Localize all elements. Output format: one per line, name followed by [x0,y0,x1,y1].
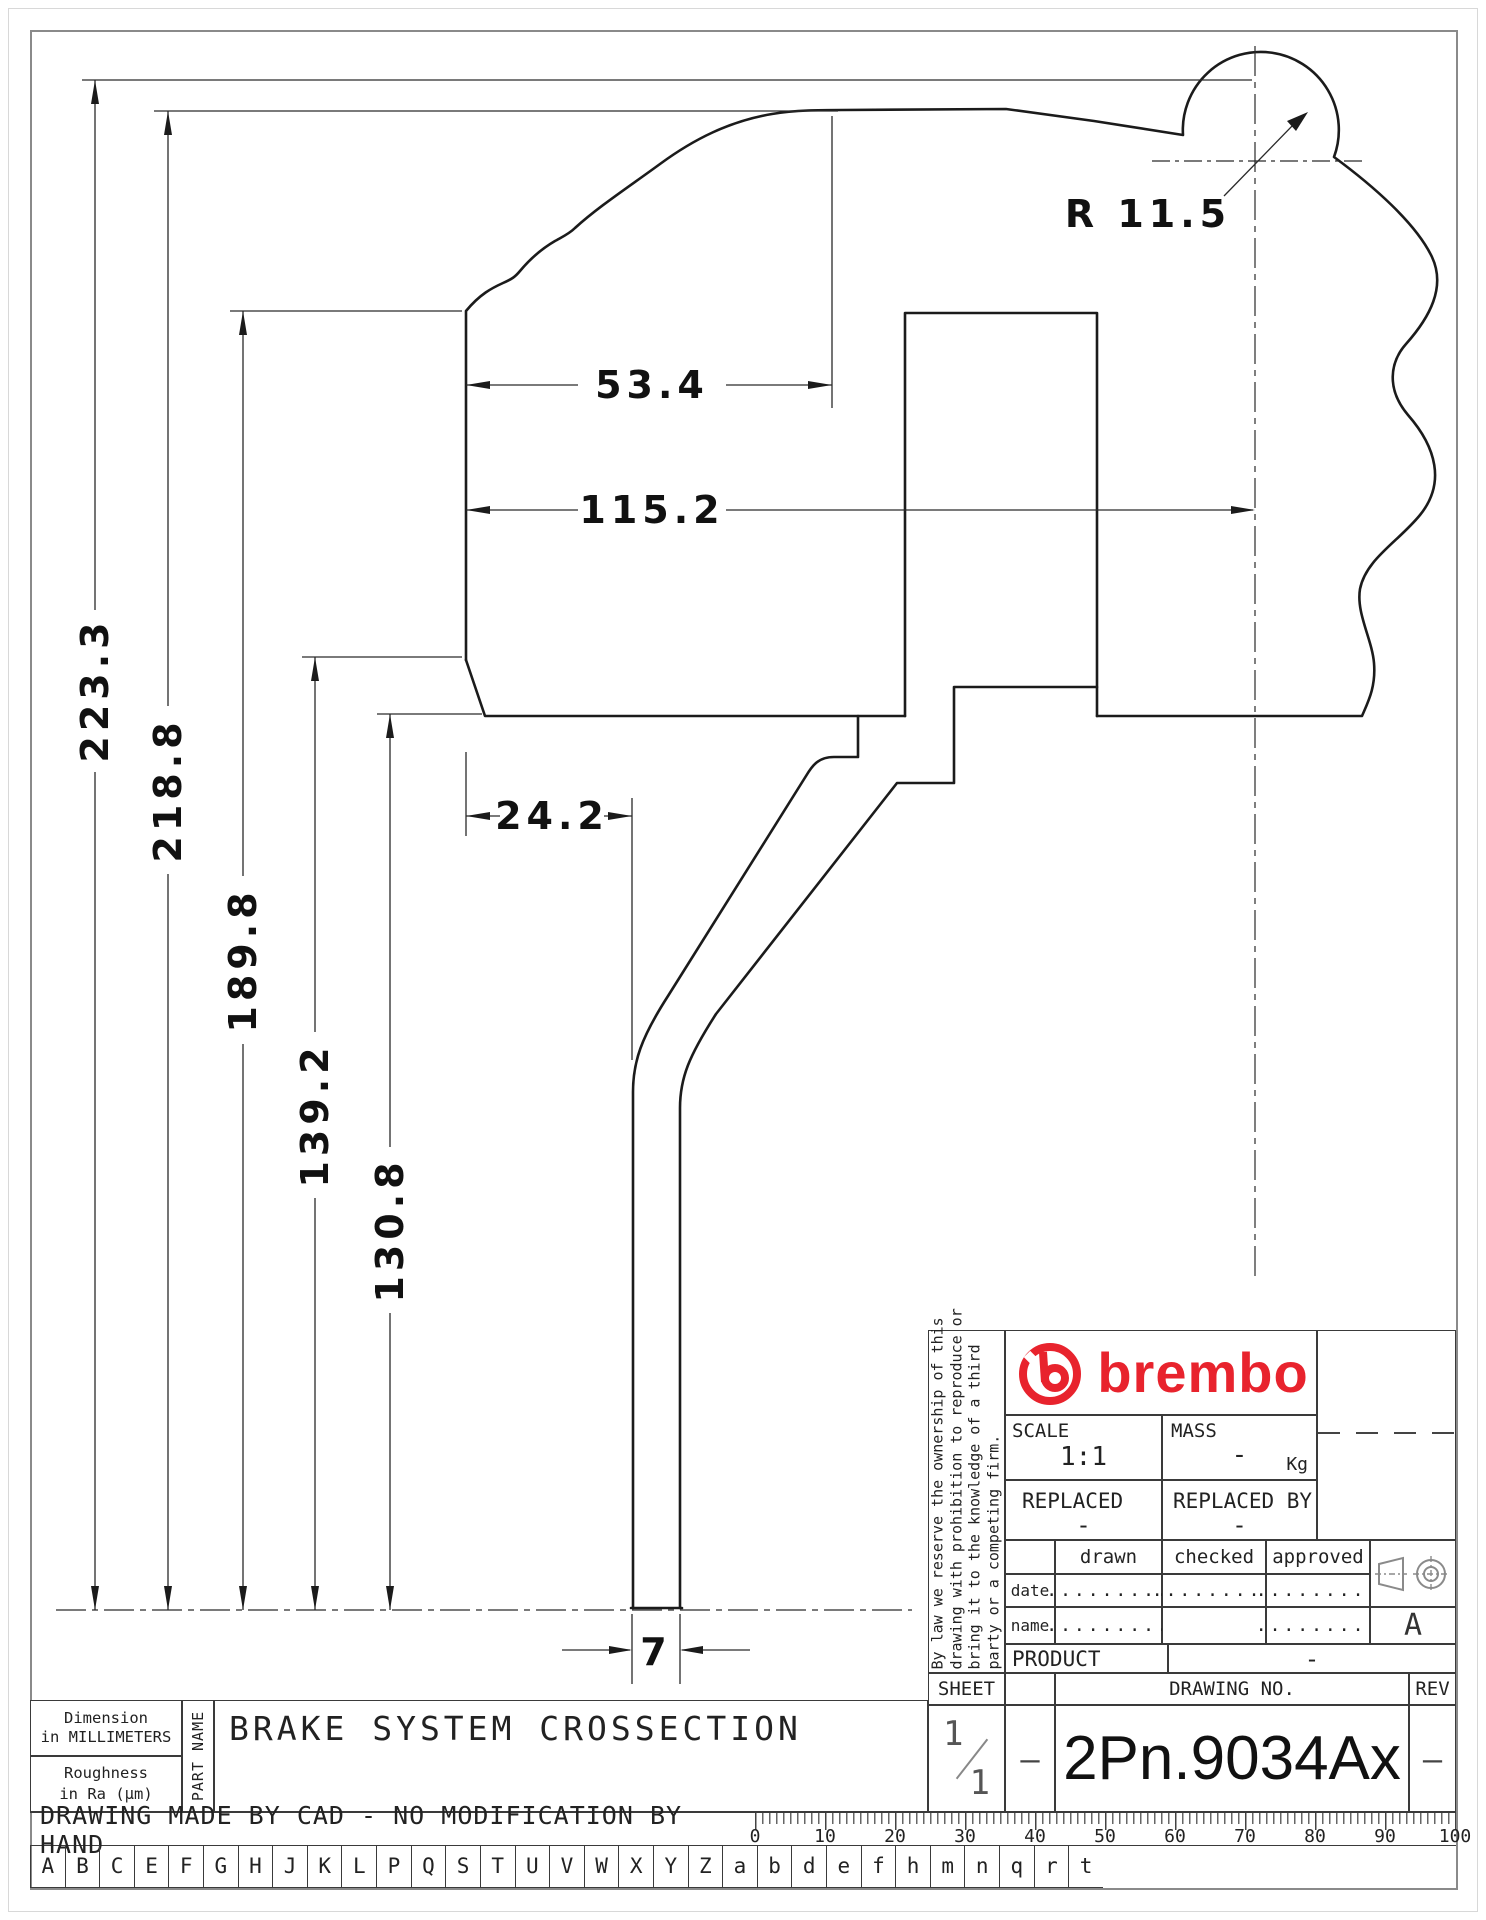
dimension-note-line: Dimension [64,1709,148,1728]
date-approved: ......... [1266,1574,1370,1607]
alphabet-cell: A [31,1845,66,1887]
ruler-number: 0 [737,1826,773,1847]
date-drawn: ......... [1055,1574,1162,1607]
alphabet-cell: P [377,1845,412,1887]
name-checked [1162,1607,1266,1644]
alphabet-cell: e [827,1845,862,1887]
copyright-line: bring it to the knowledge of a third [965,1330,984,1669]
ruler-number: 30 [947,1826,983,1847]
alphabet-cell: Y [654,1845,689,1887]
part-name: BRAKE SYSTEM CROSSECTION [229,1709,802,1748]
cad-note: DRAWING MADE BY CAD - NO MODIFICATION BY… [40,1815,740,1845]
alphabet-cell: m [931,1845,966,1887]
name-drawn: ......... [1055,1607,1162,1644]
sheet-value-cell: 1 1 [928,1705,1005,1812]
projection-cell [1370,1540,1456,1607]
scale-cell: SCALE 1:1 [1005,1415,1162,1480]
dim-53-4: 53.4 [595,363,709,407]
projection-symbol-icon [1373,1552,1453,1596]
alphabet-cell: V [550,1845,585,1887]
alphabet-cell: q [1000,1845,1035,1887]
alphabet-cell: K [308,1845,343,1887]
dimension-note-line: in MILLIMETERS [41,1728,172,1747]
dim-189-8: 189.8 [221,887,265,1032]
part-name-label: PART NAME [189,1711,207,1801]
drawn-header: drawn [1055,1540,1162,1574]
alphabet-cell: r [1035,1845,1070,1887]
alphabet-cell: S [446,1845,481,1887]
brand-cell: brembo [1005,1330,1317,1415]
replaced-value: - [1006,1511,1161,1539]
brembo-logo-icon [1013,1338,1087,1408]
alphabet-cell: h [896,1845,931,1887]
dashed-divider [1318,1432,1455,1434]
mass-label: MASS [1171,1420,1217,1442]
alphabet-cell: Q [412,1845,447,1887]
title-right-cell [1317,1330,1456,1540]
name-approved: ......... [1266,1607,1370,1644]
approved-header: approved [1266,1540,1370,1574]
rev-header: REV [1409,1673,1456,1705]
copyright-line: By law we reserve the ownership of this [928,1330,947,1669]
dim-223-3: 223.3 [73,617,117,762]
sheet-numerator: 1 [943,1714,963,1754]
replaced-cell: REPLACED - [1005,1480,1162,1540]
alphabet-cell: d [792,1845,827,1887]
alphabet-cell: a [723,1845,758,1887]
checked-header: checked [1162,1540,1266,1574]
mass-cell: MASS - Kg [1162,1415,1317,1480]
dim-24-2: 24.2 [495,794,609,838]
copyright-cell: By law we reserve the ownership of this … [928,1330,1005,1673]
alphabet-cell: E [135,1845,170,1887]
ruler-number: 80 [1297,1826,1333,1847]
product-spec-cell: PRODUCT SPEC. [1005,1644,1168,1673]
mass-unit: Kg [1286,1454,1308,1475]
part-name-cell: BRAKE SYSTEM CROSSECTION [214,1700,928,1812]
dca-corner-cell [1005,1540,1055,1574]
brand-wordmark: brembo [1097,1340,1308,1405]
alphabet-strip: A B C E F G H J K L P Q S T U V W X Y Z … [30,1845,1103,1888]
dim-130-8: 130.8 [368,1157,412,1302]
scale-value: 1:1 [1006,1442,1161,1472]
radius-leader-line [1224,124,1294,196]
dim-218-8: 218.8 [146,717,190,862]
dimension-note-cell: Dimension in MILLIMETERS [30,1700,182,1756]
ruler-number: 10 [807,1826,843,1847]
alphabet-cell: T [481,1845,516,1887]
ruler-number: 60 [1157,1826,1193,1847]
part-name-label-cell: PART NAME [182,1700,214,1812]
replaced-label: REPLACED [1022,1489,1123,1513]
scale-label: SCALE [1012,1420,1069,1442]
alphabet-cell: Z [689,1845,724,1887]
drawing-sheet: 223.3 218.8 189.8 139.2 130.8 53.4 115.2… [0,0,1486,1920]
rev-value: – [1409,1705,1456,1812]
replaced-by-value: - [1163,1511,1316,1539]
sheet-denominator: 1 [970,1763,990,1803]
ruler-number: 20 [877,1826,913,1847]
alphabet-cell: U [516,1845,551,1887]
sheet-extra-value: – [1005,1705,1055,1812]
ruler-number: 70 [1227,1826,1263,1847]
ruler: 0 10 20 30 40 50 60 70 80 90 100 [755,1813,1456,1845]
alphabet-cell: C [100,1845,135,1887]
alphabet-cell: H [239,1845,274,1887]
sheet-header: SHEET [928,1673,1005,1705]
dim-radius: R 11.5 [1065,192,1231,236]
copyright-line: party or a competing firm. [984,1330,1003,1669]
ruler-number: 90 [1367,1826,1403,1847]
alphabet-cell: t [1069,1845,1103,1887]
drawing-no-header: DRAWING NO. [1055,1673,1409,1705]
alphabet-cell: B [66,1845,101,1887]
drawing-no-value: 2Pn.9034Ax [1055,1705,1409,1812]
dim-7: 7 [640,1630,671,1674]
copyright-line: drawing with prohibition to reproduce or [947,1330,966,1669]
replaced-by-label: REPLACED BY [1173,1489,1312,1513]
alphabet-cell: J [273,1845,308,1887]
alphabet-cell: b [758,1845,793,1887]
drawing-number: 2Pn.9034Ax [1063,1723,1401,1794]
roughness-note-line: Roughness [64,1763,148,1784]
ruler-number: 50 [1087,1826,1123,1847]
alphabet-cell: W [585,1845,620,1887]
replaced-by-cell: REPLACED BY - [1162,1480,1317,1540]
date-checked: ......... [1162,1574,1266,1607]
part-leg-inner [633,716,858,1608]
sheet-size-letter: A [1370,1607,1456,1644]
dim-139-2: 139.2 [293,1042,337,1187]
alphabet-cell: X [619,1845,654,1887]
alphabet-cell: G [204,1845,239,1887]
ruler-number: 40 [1017,1826,1053,1847]
sheet-extra-header [1005,1673,1055,1705]
part-slot [905,313,1097,716]
alphabet-cell: f [862,1845,897,1887]
alphabet-cell: n [965,1845,1000,1887]
product-spec-value: - [1168,1644,1456,1673]
ruler-number: 100 [1437,1826,1473,1847]
dim-115-2: 115.2 [579,488,724,532]
alphabet-cell: L [342,1845,377,1887]
part-bottom-edge [466,660,905,716]
alphabet-cell: F [169,1845,204,1887]
